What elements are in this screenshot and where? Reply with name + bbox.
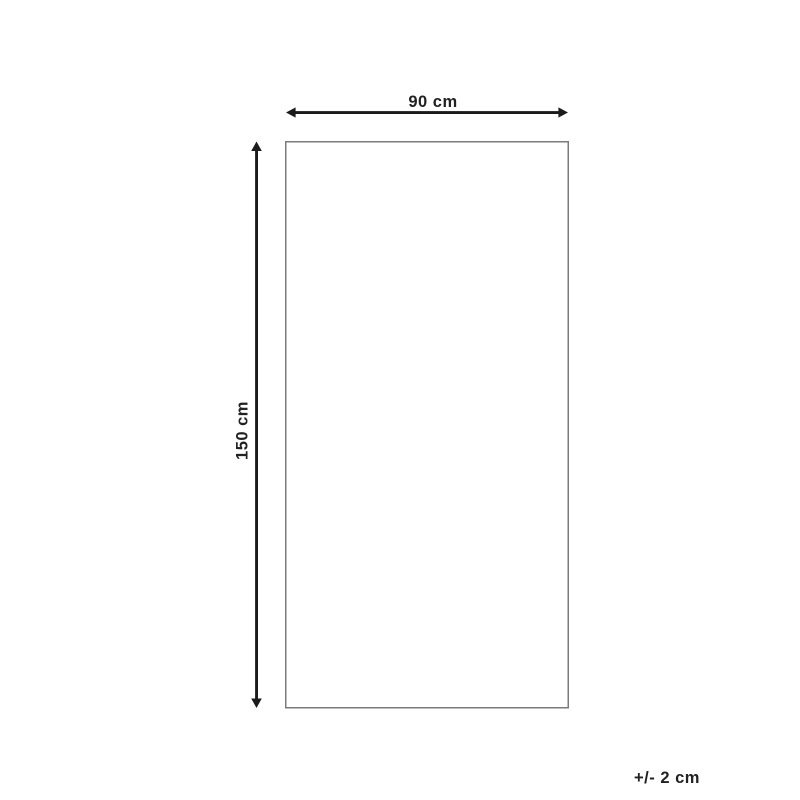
svg-text:90 cm: 90 cm	[408, 93, 457, 111]
svg-text:+/- 2 cm: +/- 2 cm	[634, 769, 700, 787]
svg-text:150 cm: 150 cm	[234, 401, 252, 460]
